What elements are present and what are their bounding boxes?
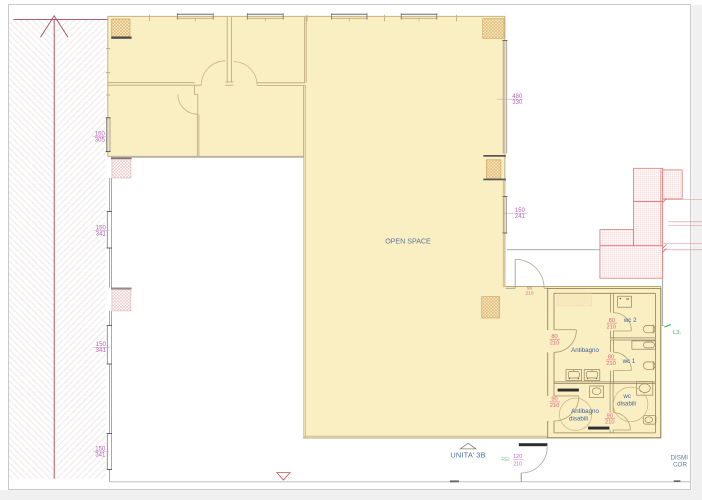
svg-text:COR: COR bbox=[673, 462, 687, 469]
svg-text:wc: wc bbox=[622, 393, 631, 400]
svg-text:OPEN SPACE: OPEN SPACE bbox=[385, 237, 431, 245]
svg-text:330: 330 bbox=[512, 100, 523, 106]
svg-text:210: 210 bbox=[607, 325, 617, 331]
svg-text:UNITA’ 3B: UNITA’ 3B bbox=[450, 450, 485, 459]
svg-text:210: 210 bbox=[513, 462, 522, 468]
svg-text:341: 341 bbox=[95, 453, 106, 459]
svg-text:341: 341 bbox=[96, 348, 107, 354]
svg-text:wc 2: wc 2 bbox=[623, 317, 637, 324]
svg-text:241: 241 bbox=[515, 214, 526, 220]
svg-text:305: 305 bbox=[95, 137, 106, 143]
svg-text:120: 120 bbox=[513, 454, 522, 460]
svg-text:L3.: L3. bbox=[673, 330, 681, 336]
svg-text:210: 210 bbox=[550, 403, 560, 409]
svg-text:wc 1: wc 1 bbox=[622, 358, 636, 365]
svg-text:Antibagno: Antibagno bbox=[571, 347, 599, 354]
svg-text:disabili: disabili bbox=[617, 400, 636, 407]
svg-text:210: 210 bbox=[550, 340, 560, 346]
svg-text:210: 210 bbox=[606, 361, 616, 367]
svg-text:REI: REI bbox=[501, 457, 509, 463]
svg-text:341: 341 bbox=[96, 231, 107, 237]
svg-text:disabili: disabili bbox=[569, 416, 588, 423]
svg-text:210: 210 bbox=[525, 290, 533, 296]
svg-text:210: 210 bbox=[605, 420, 615, 426]
svg-text:Antibagno: Antibagno bbox=[571, 408, 599, 415]
svg-text:DISMI: DISMI bbox=[671, 454, 689, 461]
